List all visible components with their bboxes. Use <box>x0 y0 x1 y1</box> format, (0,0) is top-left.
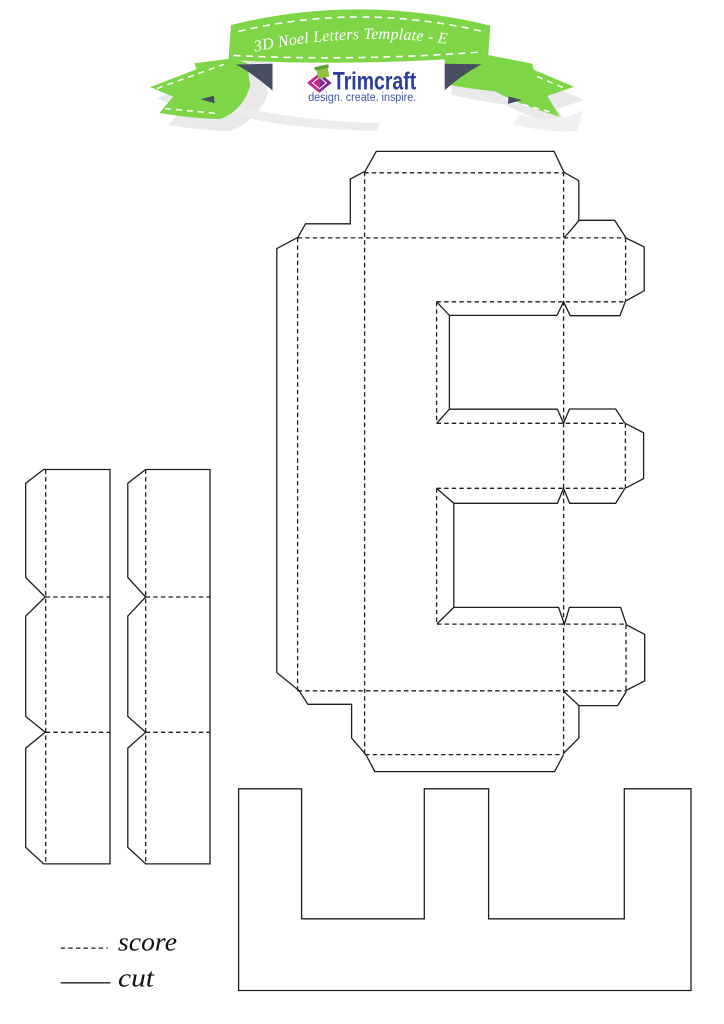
svg-text:Trimcraft: Trimcraft <box>333 67 417 95</box>
svg-text:cut: cut <box>118 964 155 993</box>
svg-text:score: score <box>118 928 177 957</box>
svg-text:design. create. inspire.: design. create. inspire. <box>308 92 416 104</box>
